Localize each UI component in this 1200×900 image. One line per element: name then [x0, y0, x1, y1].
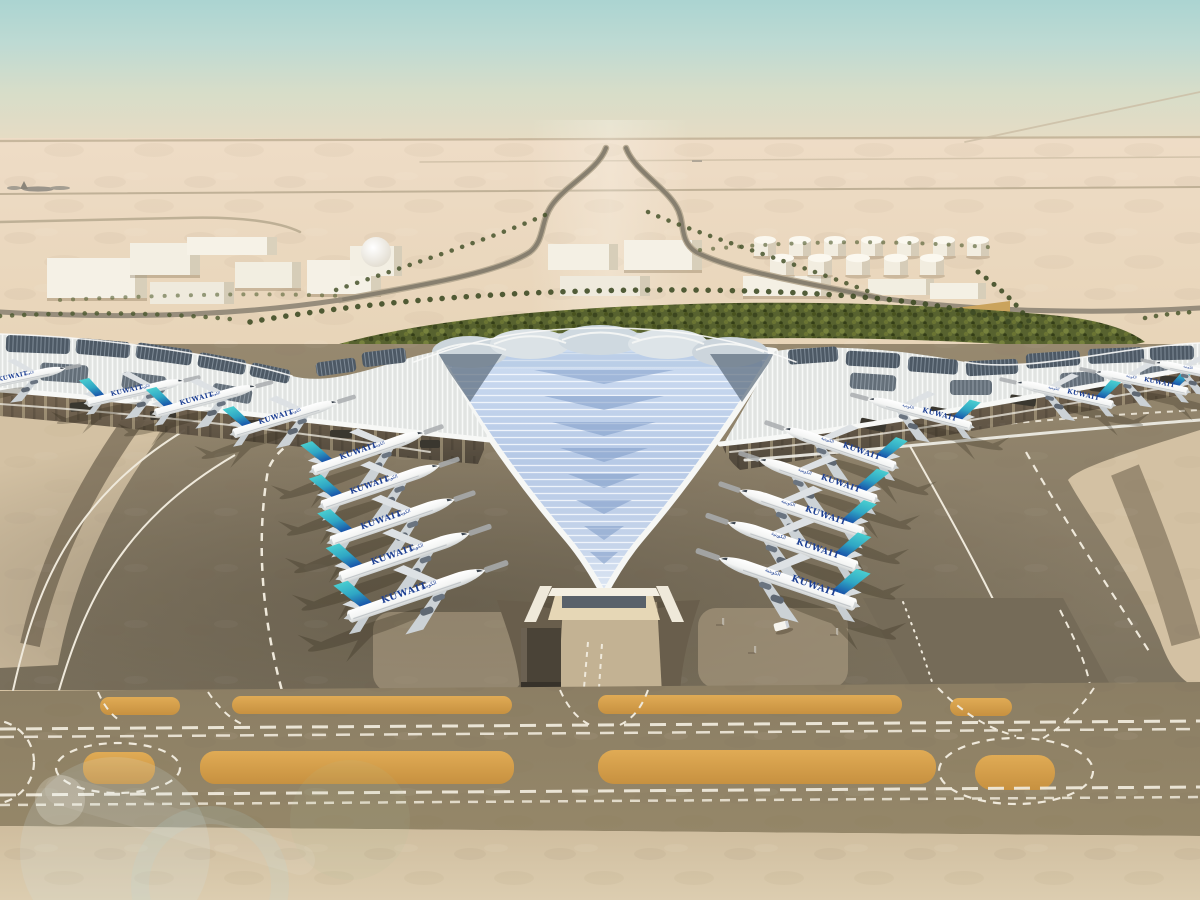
airport-rendering: KUWAIT الكويتية KUWAIT الكويتية	[0, 0, 1200, 900]
sunken-ramp	[521, 628, 561, 690]
distant-aircraft-icon	[692, 160, 702, 162]
rendering-canvas: KUWAIT الكويتية KUWAIT الكويتية	[0, 0, 1200, 900]
entrance-glass	[562, 596, 646, 608]
holding-pad-stripe	[975, 755, 1055, 790]
